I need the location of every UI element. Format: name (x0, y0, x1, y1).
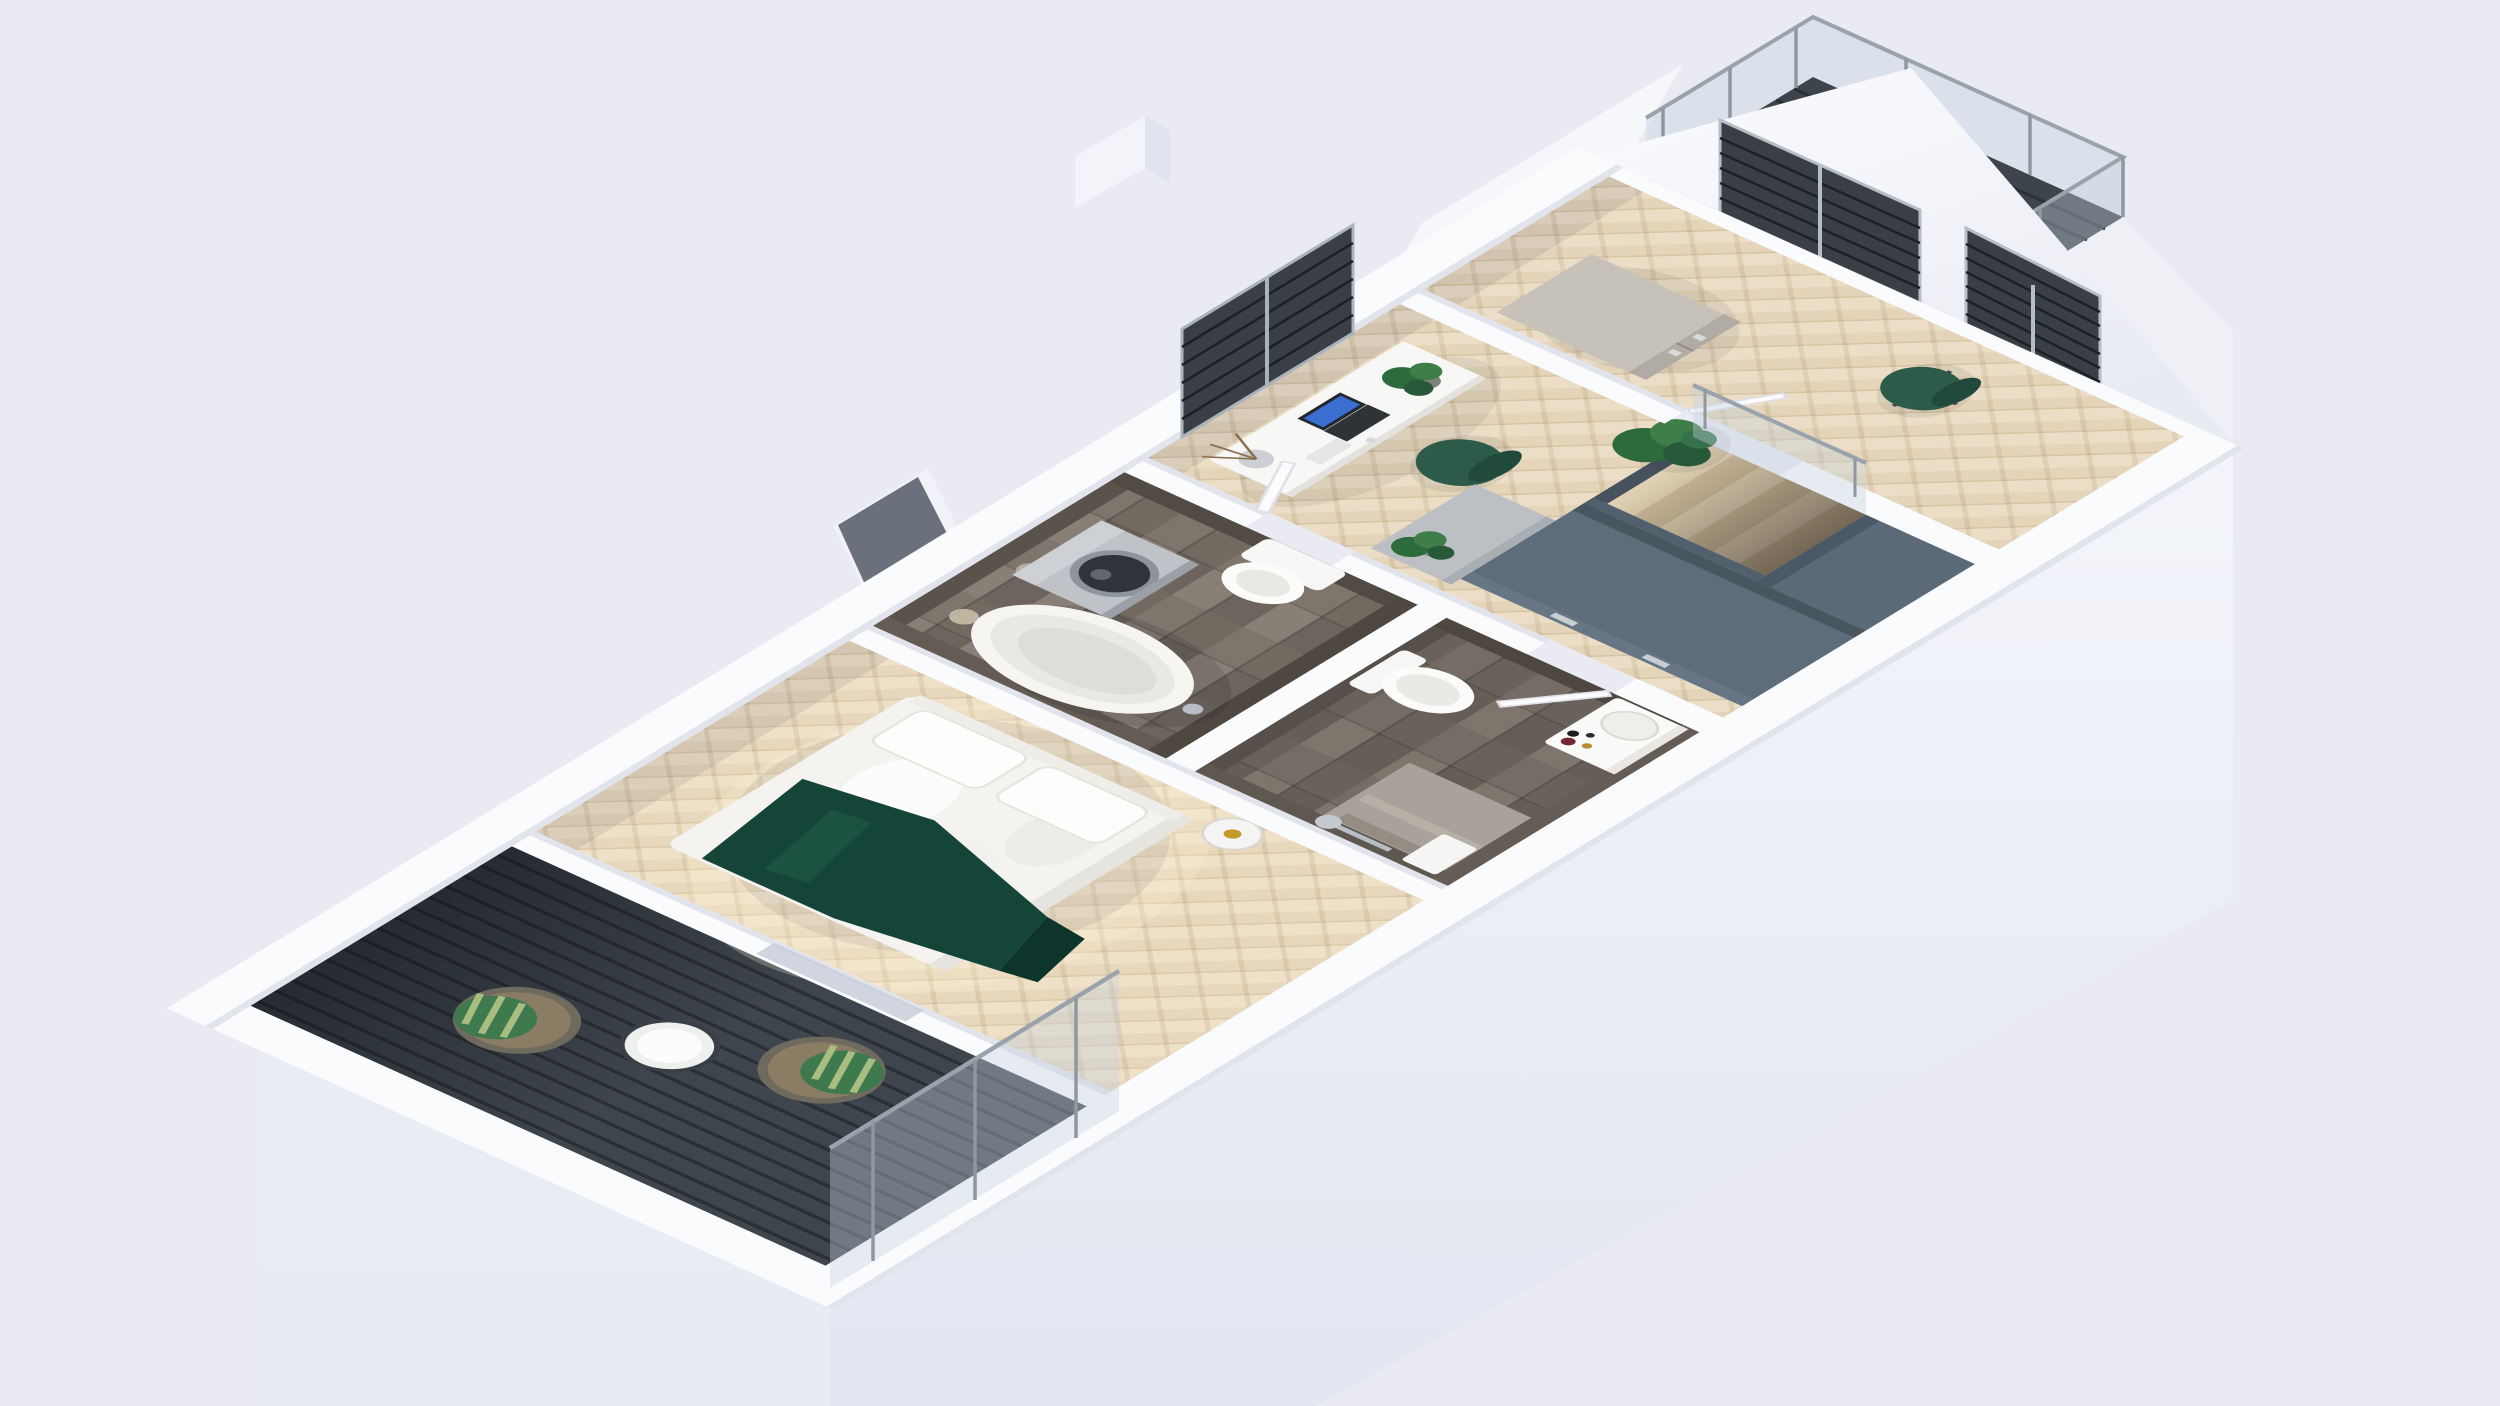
floorplan-stage (0, 0, 2500, 1406)
floorplan-render (0, 0, 2500, 1406)
